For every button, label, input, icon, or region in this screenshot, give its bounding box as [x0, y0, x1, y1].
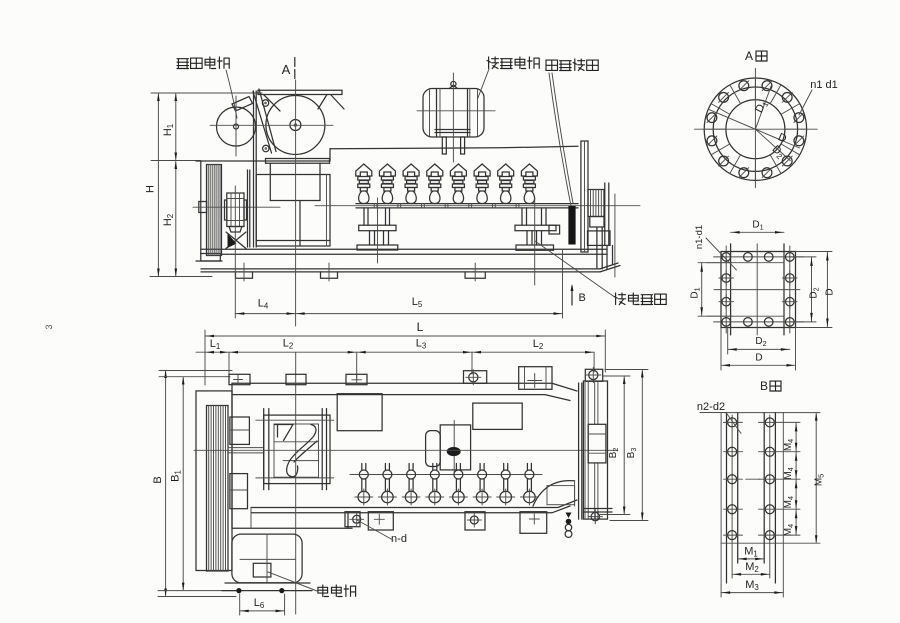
svg-text:n1 d1: n1 d1: [810, 79, 838, 91]
svg-text:D1: D1: [752, 220, 763, 232]
svg-text:B: B: [579, 292, 586, 304]
svg-text:H2: H2: [162, 214, 175, 226]
svg-text:n1-d1: n1-d1: [694, 225, 705, 249]
svg-text:L3: L3: [416, 338, 427, 351]
svg-text:M3: M3: [745, 579, 759, 592]
svg-text:D2: D2: [809, 287, 821, 298]
svg-text:L5: L5: [412, 296, 423, 309]
svg-text:A: A: [745, 49, 753, 63]
svg-text:D2: D2: [755, 336, 766, 348]
svg-text:n-d: n-d: [391, 533, 407, 545]
svg-text:D1: D1: [690, 287, 702, 298]
svg-text:L2: L2: [533, 338, 544, 351]
svg-text:H1: H1: [162, 124, 175, 136]
svg-text:M4: M4: [783, 467, 795, 479]
svg-text:L1: L1: [210, 338, 221, 351]
svg-text:n2-d2: n2-d2: [697, 401, 725, 413]
svg-text:D: D: [825, 288, 836, 295]
svg-text:M4: M4: [783, 496, 795, 508]
svg-text:B3: B3: [626, 448, 638, 459]
svg-text:3: 3: [44, 324, 54, 329]
svg-text:B: B: [760, 379, 768, 393]
svg-text:L4: L4: [258, 298, 269, 311]
svg-text:D: D: [755, 353, 762, 364]
svg-text:L6: L6: [254, 597, 265, 610]
svg-text:A: A: [282, 62, 291, 77]
svg-text:M5: M5: [814, 474, 826, 486]
svg-text:M4: M4: [783, 524, 795, 536]
svg-text:L2: L2: [283, 338, 294, 351]
svg-text:M4: M4: [783, 439, 795, 451]
svg-text:L: L: [417, 320, 424, 334]
svg-text:M2: M2: [745, 561, 759, 574]
svg-text:B1: B1: [170, 470, 183, 482]
svg-text:B: B: [152, 476, 164, 483]
svg-text:B2: B2: [608, 448, 620, 459]
svg-text:M1: M1: [744, 546, 758, 559]
svg-text:H: H: [145, 185, 157, 193]
